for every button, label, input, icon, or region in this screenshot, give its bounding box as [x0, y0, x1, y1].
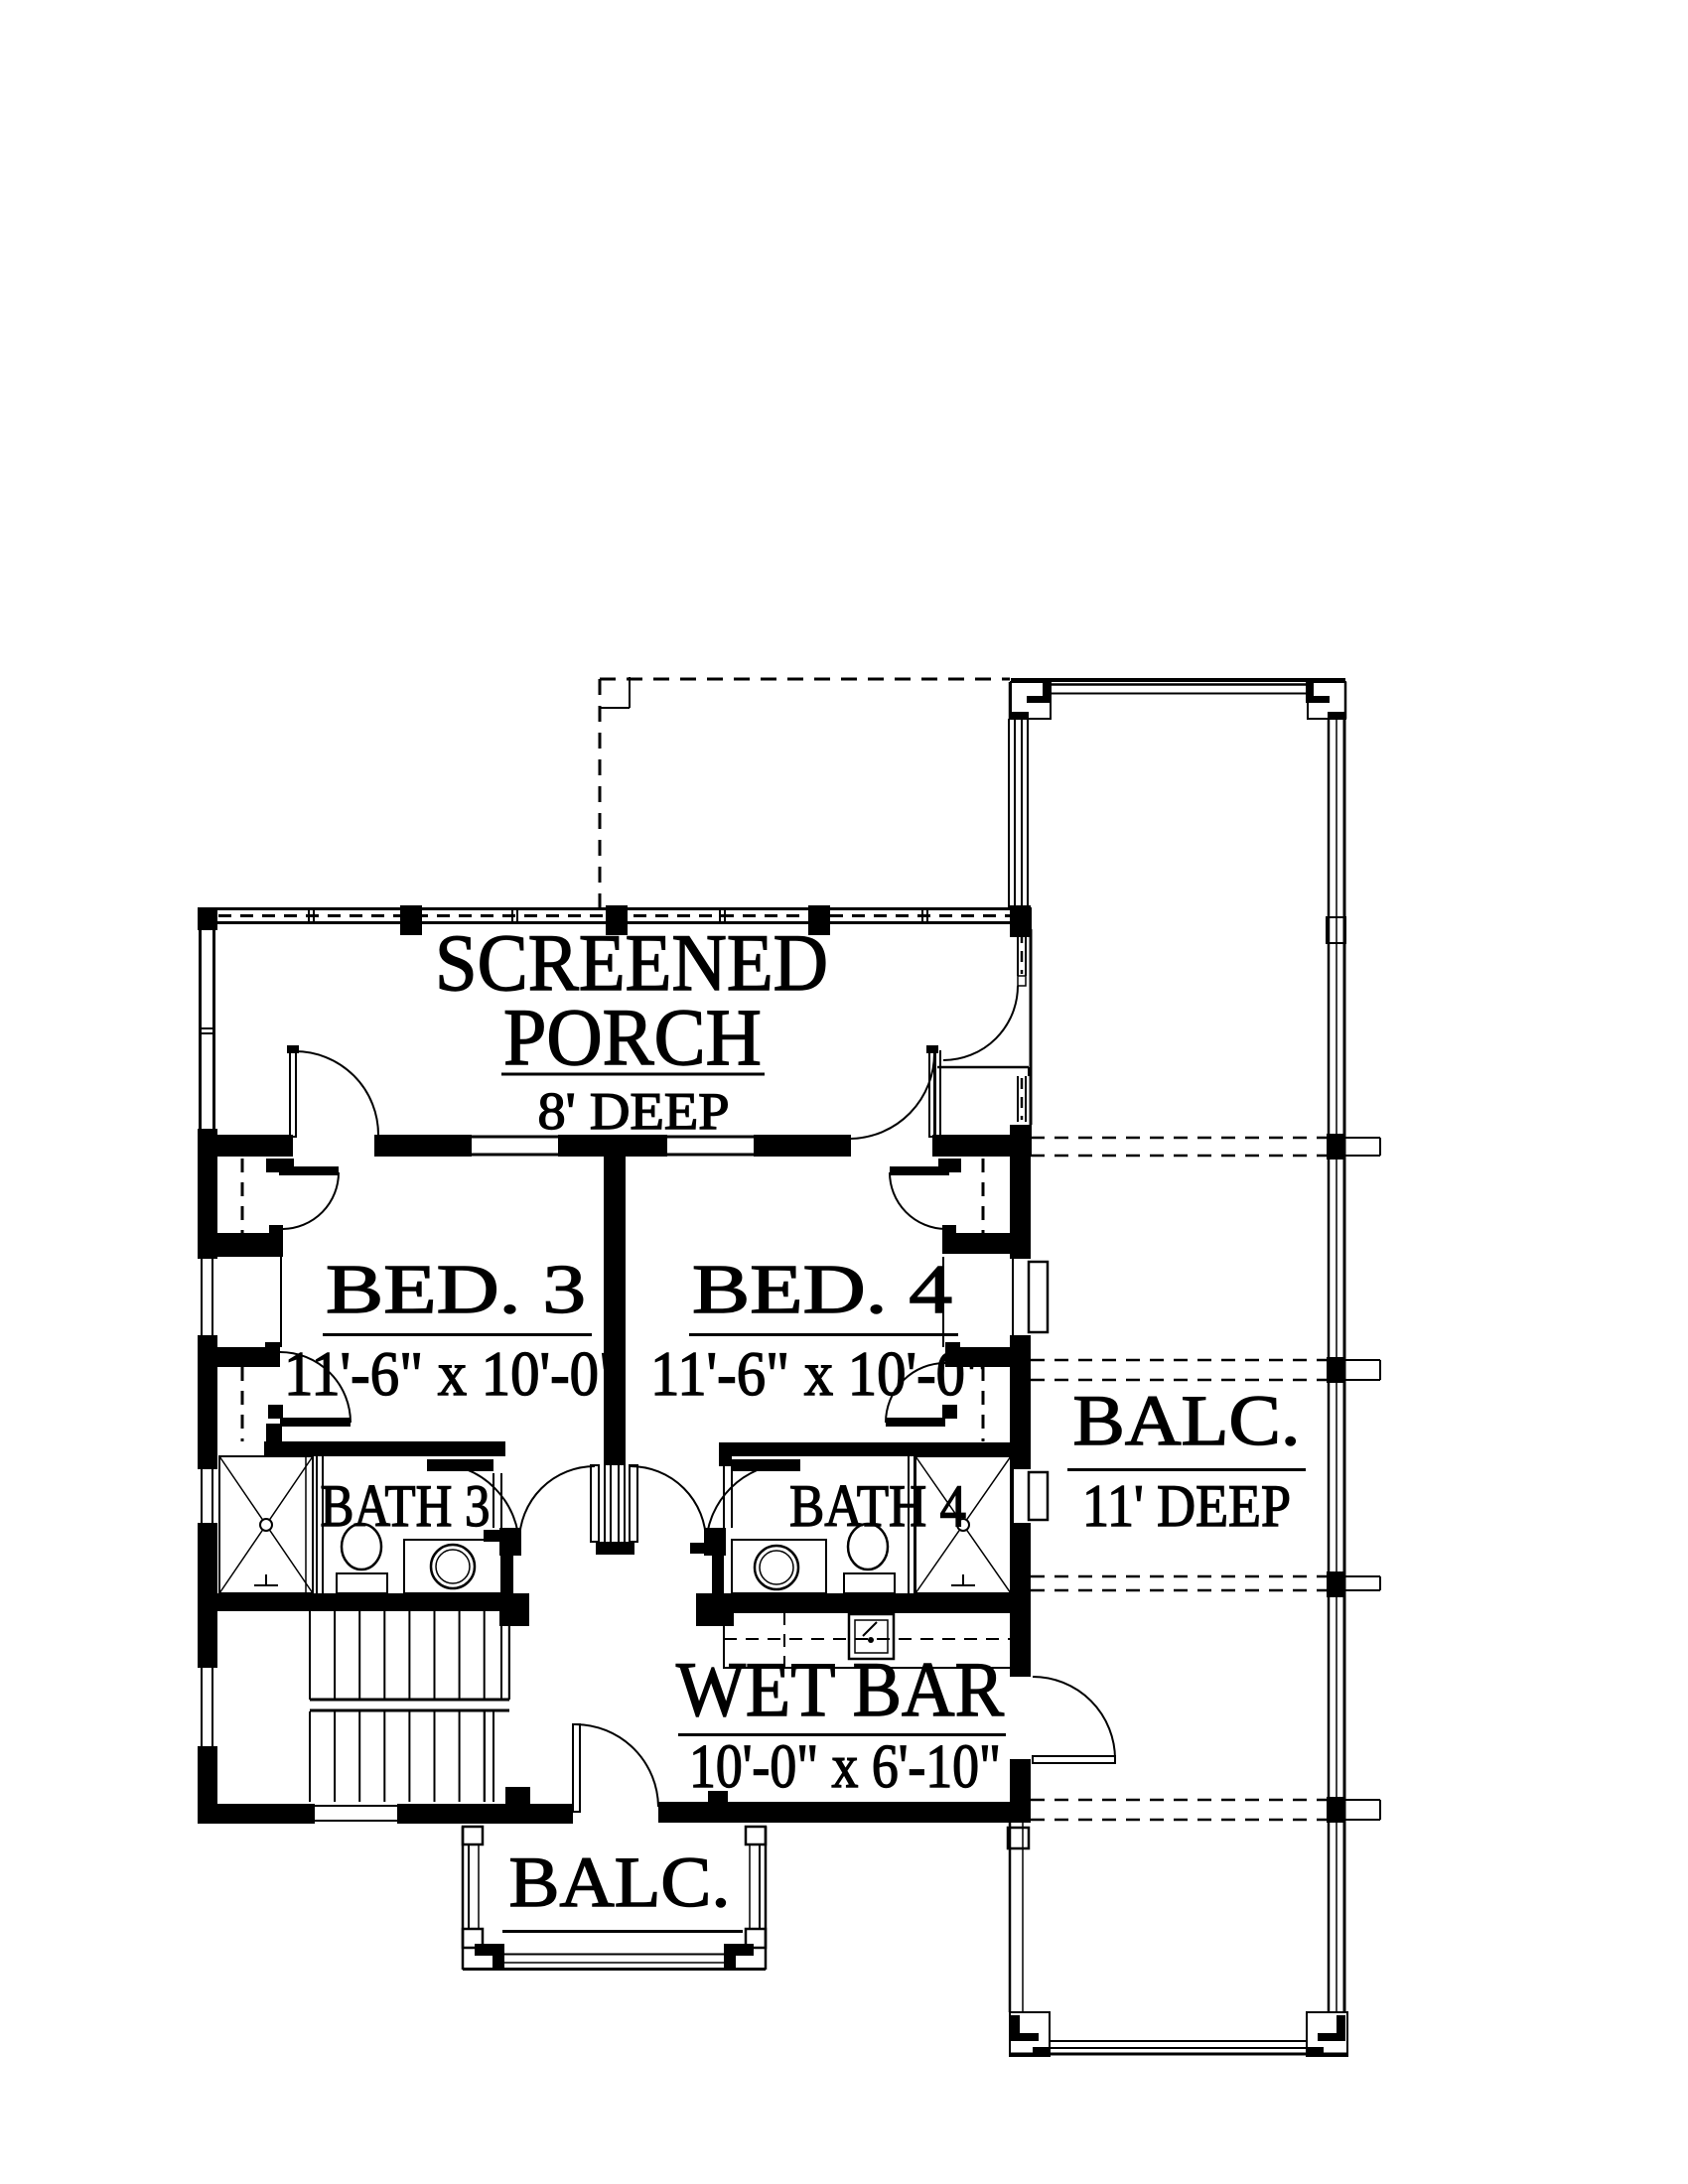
svg-text:8' DEEP: 8' DEEP: [538, 1083, 730, 1141]
svg-text:11' DEEP: 11' DEEP: [1082, 1473, 1291, 1539]
svg-text:BATH 3: BATH 3: [321, 1473, 491, 1539]
svg-text:BALC.: BALC.: [1073, 1381, 1301, 1460]
svg-text:BALC.: BALC.: [509, 1843, 731, 1922]
svg-text:WET BAR: WET BAR: [676, 1646, 1004, 1732]
svg-text:BED. 4: BED. 4: [692, 1252, 952, 1328]
svg-text:11'-6" x 10'-0": 11'-6" x 10'-0": [650, 1338, 989, 1409]
svg-text:BED. 3: BED. 3: [326, 1252, 586, 1328]
svg-text:10'-0" x 6'-10": 10'-0" x 6'-10": [689, 1733, 1001, 1801]
svg-text:BATH 4: BATH 4: [789, 1473, 966, 1539]
svg-text:11'-6" x 10'-0": 11'-6" x 10'-0": [284, 1338, 623, 1409]
svg-text:PORCH: PORCH: [503, 992, 762, 1082]
